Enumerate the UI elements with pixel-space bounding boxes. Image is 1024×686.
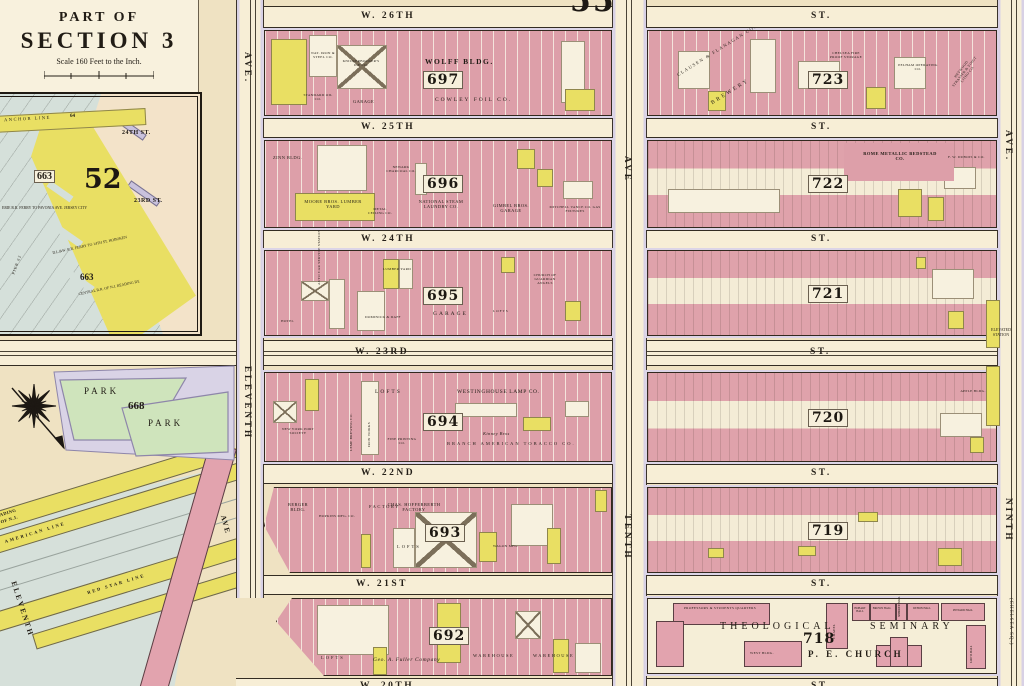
block-720: 720 APPLE BLDG. — [647, 372, 997, 462]
lot-patch — [668, 189, 780, 213]
lot-patch — [938, 548, 962, 566]
building-label: Kinney Bros — [483, 431, 510, 436]
street-label: W. 24TH — [361, 234, 415, 244]
lot-patch — [305, 379, 319, 411]
red-star-line-label: RED STAR LINE — [87, 573, 146, 596]
block-number: 723 — [808, 71, 848, 89]
building-label: LOFTS — [375, 389, 402, 396]
elevated-station-structure-south — [986, 366, 1000, 426]
seminary-title-2: SEMINARY — [870, 621, 954, 633]
block-number: 721 — [808, 285, 848, 303]
building-label: WAREHOUSE — [533, 653, 574, 658]
inset-block-663-a: 663 — [34, 170, 55, 183]
lot-patch — [563, 181, 593, 199]
inset-block-663-b: 663 — [80, 272, 94, 282]
building-label: METAL CEILING CO. — [365, 207, 395, 215]
lot-patch — [515, 611, 541, 639]
building-label: MITCHELL VANCE CO. GAS FIXTURES — [549, 205, 601, 213]
block-721: 721 — [647, 250, 997, 336]
lot-patch — [537, 169, 553, 187]
building-label: NATIONAL STEAM LAUNDRY CO. — [413, 199, 469, 210]
building-label: APPLE BLDG. — [960, 389, 986, 393]
atlas-map-page: W. 26TH ST. W. 25TH ST. W. 24TH ST. W. 2… — [0, 0, 1024, 686]
block-number: 718 — [800, 631, 838, 647]
street-label: W. 21ST — [356, 579, 408, 589]
block-number: 695 — [423, 287, 463, 305]
lot-patch — [455, 403, 517, 417]
lot-patch — [970, 437, 984, 453]
park-block-number: 668 — [128, 400, 145, 413]
eleventh-ave-label-mid: ELEVENTH — [243, 366, 253, 440]
block-723: CLAUSEN & FLANAGAN CO. BREWERY CHELSEA F… — [647, 30, 997, 116]
rome-metallic-building — [844, 143, 954, 181]
map-scale-note: Scale 160 Feet to the Inch. — [0, 57, 198, 67]
block-695: AUTO CAR SERVICE STATION LUMBER YARD HOT… — [264, 250, 612, 336]
block-694: LOFTS WESTINGHOUSE LAMP CO. 694 NEW YORK… — [264, 372, 612, 462]
pier-64-label: 64 — [70, 114, 75, 119]
building-label: MOORE BROS. LUMBER YARD — [301, 199, 365, 210]
building-label: NEW YORK PORT SOCIETY — [281, 427, 315, 435]
building-label: HEYWOOD STRASSER & VOIGT LITHO CO. — [948, 53, 981, 91]
building-label: BERGER BLDG. — [283, 502, 313, 513]
building-label: IRON WORKS — [367, 422, 371, 447]
street-suffix: ST. — [811, 11, 832, 21]
building-label: HOPKINS MFG. CO. — [319, 514, 355, 518]
lot-patch — [750, 39, 776, 93]
ninth-avenue — [997, 0, 1024, 686]
building-label: LOFTS — [397, 544, 421, 549]
street-suffix: ST. — [811, 681, 832, 686]
campus-building-west-l — [656, 621, 684, 667]
lot-patch — [523, 417, 551, 431]
building-label: PROFESSORS & STUDENTS QUARTERS — [680, 606, 760, 610]
building-label: LUMBER YARD — [379, 267, 415, 271]
lot-patch — [894, 57, 926, 89]
map-title-section: SECTION 3 — [0, 27, 198, 55]
block-697: NAT. IRON & STEEL CO. KNICKERBOCKER'S IC… — [264, 30, 612, 116]
building-label: STANDARD OIL CO. — [303, 93, 333, 101]
block-719: 719 — [647, 487, 997, 573]
building-label: ROME METALLIC BEDSTEAD CO. — [860, 151, 940, 162]
park-label-b: PARK — [148, 418, 183, 429]
building-label: COWLEY FOIL CO. — [435, 97, 512, 104]
lot-patch — [932, 269, 974, 299]
lot-patch — [916, 257, 926, 269]
lot-patch — [595, 490, 607, 512]
building-label: PELHAM OPERATING CO. — [896, 63, 940, 71]
street-label: W. 22ND — [361, 468, 415, 478]
street-label: W. 20TH — [360, 681, 414, 686]
lot-patch — [301, 281, 329, 301]
tenth-ave-label-mid: TENTH — [623, 514, 633, 561]
building-label: FINE PRINTING CO. — [385, 437, 419, 445]
block-number: 719 — [808, 522, 848, 540]
lot-patch — [708, 548, 724, 558]
building-label: LEMP BREWING CO. — [349, 413, 353, 451]
erie-ferry-label: ERIE R.R. FERRY TO PAVONIA AVE. JERSEY C… — [2, 206, 46, 210]
lot-patch — [271, 39, 307, 105]
building-label: CHAS. HOFFERBERTH FACTORY — [387, 502, 441, 513]
lot-patch — [798, 546, 816, 556]
building-label: WOLFF BLDG. — [425, 57, 494, 66]
street-suffix: ST. — [811, 468, 832, 478]
lot-patch — [898, 189, 922, 217]
eleventh-avenue — [236, 0, 264, 598]
street-label: W. 23RD — [355, 347, 409, 357]
lot-patch — [866, 87, 886, 109]
building-label: Geo. A. Fuller Company — [373, 657, 440, 664]
compass-rose — [2, 376, 74, 454]
eleventh-ave-label-top: AVE. — [243, 52, 253, 84]
building-label: CHELSEA FIRE PROOF STORAGE — [826, 51, 866, 59]
block-number: 693 — [425, 524, 465, 542]
building-label: LOFTS — [493, 309, 509, 313]
lot-patch — [501, 257, 515, 273]
building-label: ZINN BLDG. — [273, 155, 302, 160]
block-696: ZINN BLDG. MOORE BROS. LUMBER YARD NEWAR… — [264, 140, 612, 228]
lot-patch — [565, 89, 595, 111]
building-label: JARVIS HALL — [970, 646, 973, 663]
block-number: 720 — [808, 409, 848, 427]
lot-patch — [317, 145, 367, 191]
lot-patch — [329, 279, 345, 329]
block-number: 696 — [423, 175, 463, 193]
street-suffix: ST. — [811, 579, 832, 589]
block-693: BERGER BLDG. HOPKINS MFG. CO. FACTORY CH… — [264, 487, 612, 573]
block-692: LOFTS Geo. A. Fuller Company 692 WAREHOU… — [276, 598, 612, 676]
lot-patch — [361, 534, 371, 568]
brown-hall-building — [870, 603, 896, 621]
building-label: WESTINGHOUSE LAMP CO. — [457, 389, 540, 396]
lot-patch — [565, 301, 581, 321]
lot-patch — [273, 401, 297, 423]
building-label: WAGON MFG. — [493, 544, 518, 548]
block-722: ROME METALLIC BEDSTEAD CO. 722 F. W. DUB… — [647, 140, 997, 228]
building-label: KNICKERBOCKER'S ICE CO. — [339, 59, 383, 67]
block-number: 692 — [429, 627, 469, 645]
building-label: LOFTS — [321, 655, 345, 660]
dehon-hall-building — [907, 603, 939, 621]
street-label: W. 25TH — [361, 122, 415, 132]
building-label: CHURCH OF GUARDIAN ANGELS — [533, 273, 557, 286]
building-label: GARAGE — [353, 99, 374, 104]
lot-patch — [565, 401, 589, 417]
building-label: HOTEL — [281, 319, 294, 323]
waterfront-piers: READING R.R. OF N.J. AMERICAN LINE RED S… — [0, 448, 236, 686]
building-label: NEWARK CHARCOAL CO. — [383, 165, 419, 173]
elevated-station-label: ELEVATED STATION — [986, 328, 1016, 338]
lot-patch — [547, 528, 561, 564]
elevated-station-structure-north — [986, 300, 1000, 348]
building-label: WAREHOUSE — [473, 653, 514, 658]
tenth-avenue — [612, 0, 647, 686]
scale-bar — [44, 70, 154, 80]
building-label: PINTARD HALL — [944, 609, 982, 612]
map-title-part-of: PART OF — [0, 10, 198, 27]
building-label: DOMINICK & DAFF — [365, 315, 401, 319]
street-label: W. 26TH — [361, 11, 415, 21]
building-label: BRANCH AMERICAN TOBACCO CO. — [447, 441, 576, 446]
building-label: BROWN HALL — [871, 607, 893, 610]
block-number: 722 — [808, 175, 848, 193]
plate-number-left: 52 — [84, 164, 122, 195]
tenth-ave-label-top: AVE — [623, 156, 633, 183]
building-label: AUTO CAR SERVICE STATION — [317, 230, 321, 285]
block-718-seminary: PROFESSORS & STUDENTS QUARTERS THEOLOGIC… — [647, 598, 997, 674]
building-label: F. W. DUBOIS & CO. — [948, 155, 985, 159]
church-label: P. E. CHURCH — [808, 649, 904, 660]
inset-24th-st-label: 24TH ST. — [122, 130, 151, 136]
ninth-ave-label-top: AVE. — [1004, 130, 1014, 162]
block-number: 694 — [423, 413, 463, 431]
building-label: WEST BLDG. — [750, 651, 774, 655]
building-label: NAT. IRON & STEEL CO. — [309, 51, 337, 59]
street-suffix: ST. — [811, 122, 832, 132]
lot-patch — [383, 259, 399, 289]
building-label: HOBART HALL — [852, 607, 868, 614]
building-label: GIMBEL BROS. GARAGE — [483, 203, 539, 214]
building-label: DEHON HALL — [909, 607, 935, 610]
ninth-ave-label-mid: NINTH — [1004, 498, 1014, 543]
lot-patch — [517, 149, 535, 169]
waterfront-inset-map: ANCHOR LINE 64 663 24TH ST. 23RD ST. ERI… — [0, 92, 202, 336]
lot-patch — [357, 291, 385, 331]
chelsea-square-label: (CHELSEA SQ.) — [1008, 598, 1013, 645]
block-number: 697 — [423, 71, 463, 89]
inset-23rd-st-label: 23RD ST. — [134, 198, 163, 204]
park-label-a: PARK — [84, 386, 119, 397]
building-label: SHERRED HALL — [898, 596, 901, 617]
street-suffix: ST. — [811, 234, 832, 244]
lot-patch — [948, 311, 964, 329]
lot-patch — [399, 259, 413, 289]
plate-number-top: 55 — [570, 0, 616, 19]
lot-patch — [940, 413, 982, 437]
jarvis-hall-building — [966, 625, 986, 669]
lot-patch — [928, 197, 944, 221]
lot-patch — [575, 643, 601, 673]
building-label: GARAGE — [433, 311, 468, 318]
lot-patch — [858, 512, 878, 522]
street-suffix: ST. — [810, 347, 831, 357]
